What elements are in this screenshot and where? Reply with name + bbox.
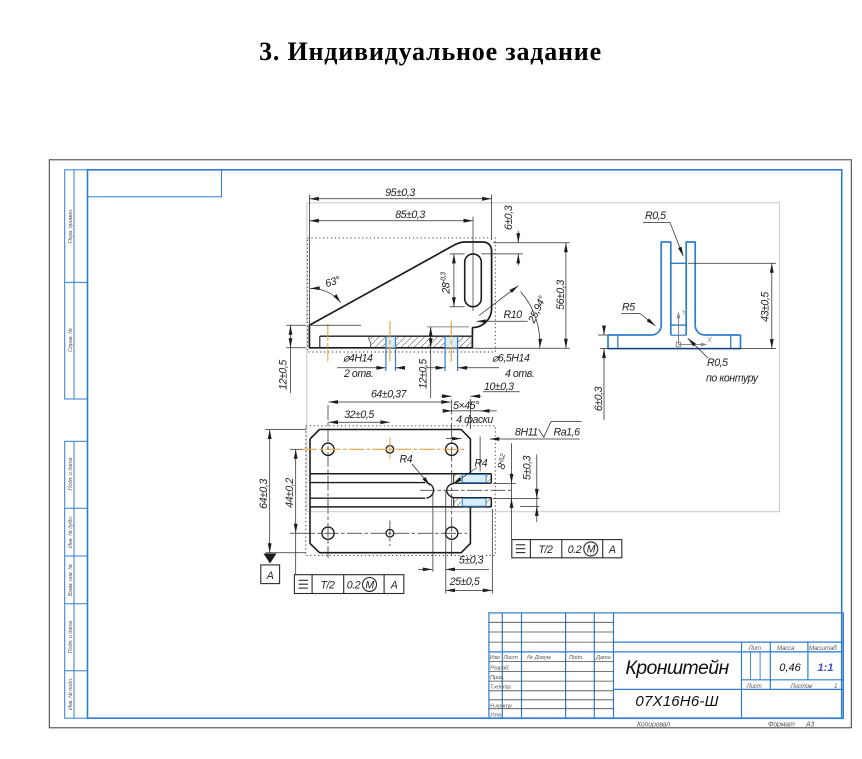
svg-text:⌀6,5H14: ⌀6,5H14 [492,353,530,365]
svg-text:Разраб.: Разраб. [490,666,510,672]
svg-text:А: А [390,580,398,592]
svg-text:6±0,3: 6±0,3 [503,205,515,230]
svg-text:Подп. и дата: Подп. и дата [68,458,74,491]
svg-text:Перв. примен.: Перв. примен. [68,209,74,244]
svg-text:1:1: 1:1 [818,662,834,674]
svg-text:по контуру: по контуру [706,373,759,385]
svg-text:Дата: Дата [595,655,611,661]
svg-text:Инв. № подл.: Инв. № подл. [68,678,74,710]
svg-text:Пров.: Пров. [490,675,504,681]
svg-text:3. Индивидуальное задание: 3. Индивидуальное задание [259,37,602,66]
svg-text:32±0,5: 32±0,5 [344,409,374,421]
svg-text:№ Докум.: № Докум. [527,655,552,661]
svg-text:T/2: T/2 [321,580,336,592]
svg-text:R10: R10 [504,309,523,321]
svg-text:5±0,3: 5±0,3 [459,555,484,567]
svg-text:Изм: Изм [490,655,500,661]
svg-text:А: А [266,570,274,582]
svg-text:Лист: Лист [746,683,762,690]
svg-text:Утв.: Утв. [489,713,502,719]
svg-text:Масса: Масса [777,645,795,652]
svg-text:0,46: 0,46 [779,662,801,674]
svg-text:Взам. инв. №: Взам. инв. № [68,564,74,596]
svg-text:5×45°: 5×45° [453,400,479,412]
svg-text:Н.контр.: Н.контр. [490,704,513,710]
svg-text:Масштаб: Масштаб [809,645,837,652]
svg-text:8H11: 8H11 [515,427,538,439]
svg-text:М: М [587,544,596,556]
svg-text:4 фаски: 4 фаски [456,414,493,426]
svg-text:85±0,3: 85±0,3 [395,209,425,221]
svg-text:Т.контр.: Т.контр. [490,685,512,691]
svg-text:Копировал: Копировал [637,722,670,729]
svg-text:А: А [608,544,616,556]
svg-text:4 отв.: 4 отв. [505,368,534,380]
svg-text:56±0,3: 56±0,3 [555,280,567,310]
svg-text:М: М [365,579,374,591]
svg-text:Кронштейн: Кронштейн [625,657,729,679]
svg-text:12±0,5: 12±0,5 [278,360,290,390]
svg-text:44±0,2: 44±0,2 [284,478,296,508]
svg-text:R4: R4 [400,454,413,466]
svg-text:T/2: T/2 [539,544,554,556]
svg-text:Подп.: Подп. [569,655,583,661]
svg-text:Формат: Формат [768,722,795,729]
svg-text:Листов: Листов [790,683,813,690]
svg-text:R5: R5 [622,302,635,314]
svg-text:5±0,3: 5±0,3 [522,455,534,480]
svg-text:0.2: 0.2 [347,580,361,592]
svg-text:12±0,5: 12±0,5 [418,359,430,389]
svg-text:⌀4H14: ⌀4H14 [343,353,373,365]
svg-text:X: X [706,335,713,344]
svg-text:64±0,3: 64±0,3 [258,479,270,509]
svg-text:R0,5: R0,5 [645,210,666,222]
svg-text:Справ. №: Справ. № [68,328,74,352]
svg-text:0.2: 0.2 [568,544,582,556]
svg-text:07Х16Н6-Ш: 07Х16Н6-Ш [635,693,718,710]
svg-text:6±0,3: 6±0,3 [593,386,605,411]
svg-text:R0,5: R0,5 [707,357,728,369]
svg-text:Ra1,6: Ra1,6 [554,427,581,439]
svg-text:95±0,3: 95±0,3 [385,187,415,199]
svg-text:Подп. и дата: Подп. и дата [68,621,74,654]
svg-text:Лист: Лист [503,655,518,661]
svg-text:А3: А3 [805,722,814,729]
svg-text:43±0,5: 43±0,5 [760,292,772,322]
svg-text:25±0,5: 25±0,5 [449,576,480,588]
svg-text:10±0,3: 10±0,3 [484,381,514,393]
svg-text:64±0,37: 64±0,37 [371,389,408,401]
svg-text:2 отв.: 2 отв. [343,368,373,380]
svg-text:Лит.: Лит. [748,645,763,652]
svg-text:R4: R4 [475,458,488,470]
svg-text:Инв. № дубл.: Инв. № дубл. [68,516,74,548]
svg-text:1: 1 [834,683,837,690]
